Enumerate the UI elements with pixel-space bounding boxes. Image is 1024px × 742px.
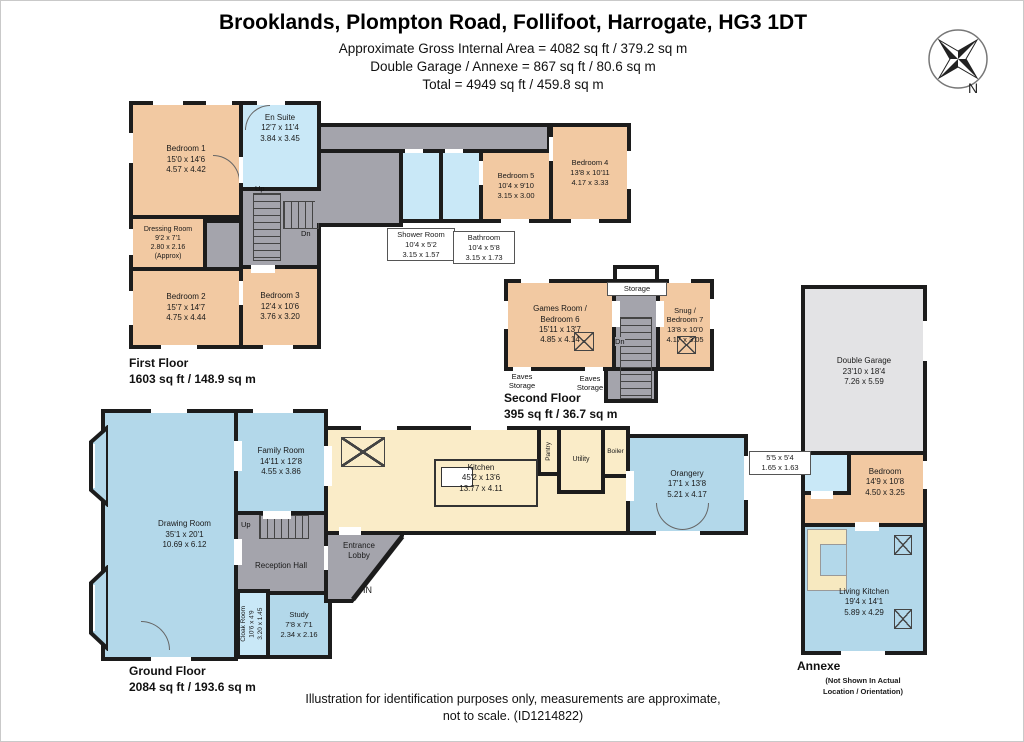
room-name: Storage — [610, 284, 664, 294]
gross-area-line: Approximate Gross Internal Area = 4082 s… — [1, 40, 1024, 58]
room-dims-metric: 4.85 x 4.14 — [533, 335, 587, 345]
door-opening — [811, 491, 833, 499]
room-label: Bedroom 4 13'8 x 10'11 4.17 x 3.33 — [570, 158, 609, 187]
disclaimer-line2: not to scale. (ID1214822) — [1, 708, 1024, 725]
room-dims-imperial: 15'0 x 14'6 — [166, 155, 206, 165]
roof-lantern-icon — [341, 437, 385, 467]
door-opening — [656, 301, 664, 327]
door-opening — [234, 539, 242, 565]
window — [841, 651, 885, 655]
room-name: Bedroom 4 — [570, 158, 609, 168]
room-label: Double Garage 23'10 x 18'4 7.26 x 5.59 — [837, 356, 891, 387]
room-label: Bedroom 1 15'0 x 14'6 4.57 x 4.42 — [166, 144, 206, 175]
stairs-second-floor — [620, 317, 652, 399]
room-name: Shower Room — [390, 230, 452, 240]
door-opening — [239, 281, 243, 305]
room-dims-imperial: 9'2 x 7'1 — [144, 234, 192, 243]
room-name: Drawing Room — [158, 519, 211, 529]
disclaimer-line1: Illustration for identification purposes… — [1, 691, 1024, 708]
room-dims-imperial: 45'2 x 13'6 — [433, 473, 529, 483]
room-dims-approx: (Approx) — [144, 252, 192, 261]
room-drawing-room: Drawing Room 35'1 x 20'1 10.69 x 6.12 — [101, 409, 238, 661]
window — [253, 409, 293, 413]
floor-name: Ground Floor — [129, 663, 256, 679]
room-bedroom-2: Bedroom 2 15'7 x 14'7 4.75 x 4.44 — [129, 267, 243, 349]
window — [923, 321, 927, 361]
window — [263, 345, 293, 349]
annexe-label: Annexe — [797, 658, 840, 674]
annexe-note-line1: (Not Shown In Actual — [789, 676, 937, 687]
room-name-2: Lobby — [327, 551, 391, 561]
eaves-line1: Eaves — [499, 372, 545, 381]
room-family-room: Family Room 14'11 x 12'8 4.55 x 3.86 — [234, 409, 328, 515]
room-dims-metric: 4.55 x 3.86 — [257, 467, 304, 477]
bay-window-icon — [84, 565, 108, 651]
room-name: Bedroom 2 — [166, 292, 206, 302]
window — [151, 409, 187, 413]
total-area-line: Total = 4949 sq ft / 459.8 sq m — [1, 76, 1024, 94]
room-name: Kitchen — [433, 463, 529, 473]
kitchen-label: Kitchen 45'2 x 13'6 13.77 x 4.11 — [433, 463, 529, 494]
page-title: Brooklands, Plompton Road, Follifoot, Ha… — [1, 11, 1024, 35]
room-dims-metric: 4.75 x 4.44 — [166, 313, 206, 323]
room-label: En Suite 12'7 x 11'4 3.84 x 3.45 — [260, 105, 300, 144]
room-dims-imperial: 7'8 x 7'1 — [280, 620, 317, 630]
room-dims-imperial: 13'8 x 10'11 — [570, 168, 609, 178]
room-name: Dressing Room — [144, 225, 192, 234]
window — [361, 426, 397, 430]
window — [129, 133, 133, 163]
window — [501, 219, 529, 223]
room-bathroom — [439, 149, 483, 223]
room-name: Family Room — [257, 446, 304, 456]
room-dims-imperial: 10'4 x 9'10 — [497, 181, 534, 191]
room-label: Bedroom 3 12'4 x 10'6 3.76 x 3.20 — [260, 291, 300, 322]
room-cloak-room: Cloak Room 10'6 x 4'9 3.20 x 1.45 — [236, 589, 270, 659]
door-opening — [234, 441, 242, 471]
room-label: Drawing Room 35'1 x 20'1 10.69 x 6.12 — [128, 519, 211, 550]
stairs-first-floor-down — [283, 201, 319, 229]
room-double-garage: Double Garage 23'10 x 18'4 7.26 x 5.59 — [801, 285, 927, 459]
room-dims-imperial: 19'4 x 14'1 — [809, 597, 919, 607]
room-label: Snug / Bedroom 7 13'8 x 10'0 4.17 x 3.05 — [666, 306, 703, 345]
door-opening — [612, 301, 620, 327]
room-dims-metric: 4.17 x 3.05 — [666, 335, 703, 345]
door-opening — [513, 367, 531, 371]
room-name: En Suite — [260, 113, 300, 123]
door-opening — [239, 157, 243, 183]
room-name: Games Room / — [533, 304, 587, 314]
room-dims-imperial: 12'4 x 10'6 — [260, 302, 300, 312]
window — [206, 101, 232, 105]
room-dims-imperial: 10'4 x 5'2 — [390, 240, 452, 250]
corridor-opening — [315, 191, 325, 223]
room-label: Family Room 14'11 x 12'8 4.55 x 3.86 — [257, 446, 304, 477]
door-opening — [324, 446, 332, 486]
door-opening — [251, 265, 275, 273]
room-label: Games Room / Bedroom 6 15'11 x 13'7 4.85… — [533, 304, 587, 346]
window — [129, 291, 133, 325]
door-opening — [445, 149, 463, 153]
room-dims-imperial: 13'8 x 10'0 — [666, 325, 703, 335]
room-dims-imperial: 23'10 x 18'4 — [837, 367, 891, 377]
eaves-line2: Storage — [499, 381, 545, 390]
room-label: Boiler — [607, 448, 624, 456]
stairs-first-floor-up — [253, 193, 281, 261]
door-opening — [479, 161, 483, 185]
door-opening — [405, 149, 423, 153]
door-opening — [339, 527, 361, 535]
stairs-up-label: Up — [255, 184, 265, 193]
window — [627, 151, 631, 189]
room-bedroom-3: Bedroom 3 12'4 x 10'6 3.76 x 3.20 — [239, 265, 321, 349]
room-study: Study 7'8 x 7'1 2.34 x 2.16 — [266, 591, 332, 659]
window — [151, 657, 191, 661]
disclaimer: Illustration for identification purposes… — [1, 691, 1024, 725]
room-name: Entrance — [327, 541, 391, 551]
room-dims-metric: 5.21 x 4.17 — [667, 490, 707, 500]
plan-header: Brooklands, Plompton Road, Follifoot, Ha… — [1, 11, 1024, 95]
living-kitchen-label: Living Kitchen 19'4 x 14'1 5.89 x 4.29 — [809, 587, 919, 618]
entrance-in-label: IN — [363, 585, 372, 595]
room-dims-metric: 2.34 x 2.16 — [280, 630, 317, 640]
room-dims-metric: 13.77 x 4.11 — [433, 484, 529, 494]
room-name: Pantry — [545, 442, 553, 461]
room-label: Study 7'8 x 7'1 2.34 x 2.16 — [280, 610, 317, 639]
door-opening — [549, 137, 553, 161]
room-dims-imperial: 14'9 x 10'8 — [847, 477, 923, 487]
window — [521, 279, 549, 283]
shower-room-callout: Shower Room 10'4 x 5'2 3.15 x 1.57 — [387, 228, 455, 261]
room-dims-imperial: 5'5 x 5'4 — [752, 453, 808, 463]
room-name: Utility — [572, 455, 589, 464]
room-dims-imperial: 14'11 x 12'8 — [257, 457, 304, 467]
room-name: Bedroom — [847, 467, 923, 477]
garage-annexe-area-line: Double Garage / Annexe = 867 sq ft / 80.… — [1, 58, 1024, 76]
storage-callout: Storage — [607, 282, 667, 296]
room-dims-metric: 5.89 x 4.29 — [809, 608, 919, 618]
room-dims-imperial: 35'1 x 20'1 — [158, 530, 211, 540]
room-label: Utility — [572, 455, 589, 464]
room-dims-metric: 3.15 x 1.73 — [456, 253, 512, 263]
entrance-lobby-label: Entrance Lobby — [327, 541, 391, 562]
window — [257, 101, 285, 105]
eaves-line1: Eaves — [567, 374, 613, 383]
room-bedroom-5: Bedroom 5 10'4 x 9'10 3.15 x 3.00 — [479, 149, 553, 223]
room-dims-metric: 4.57 x 4.42 — [166, 165, 206, 175]
door-opening — [855, 522, 879, 531]
room-label: Reception Hall — [255, 535, 307, 571]
room-label: Bedroom 5 10'4 x 9'10 3.15 x 3.00 — [497, 171, 534, 200]
room-dims-metric: 3.76 x 3.20 — [260, 312, 300, 322]
window — [153, 101, 183, 105]
window — [161, 345, 197, 349]
room-dims-metric: 2.80 x 2.16 — [144, 243, 192, 252]
room-dims-imperial: 15'7 x 14'7 — [166, 303, 206, 313]
floorplan-page: Brooklands, Plompton Road, Follifoot, Ha… — [0, 0, 1024, 742]
floor-name: First Floor — [129, 355, 256, 371]
room-label: Pantry — [545, 442, 553, 461]
second-floor-label: Second Floor 395 sq ft / 36.7 sq m — [504, 390, 617, 422]
window — [744, 456, 748, 500]
room-dressing-room: Dressing Room 9'2 x 7'1 2.80 x 2.16 (App… — [129, 215, 207, 271]
room-dims-metric: 3.84 x 3.45 — [260, 134, 300, 144]
room-name: Bedroom 3 — [260, 291, 300, 301]
room-name: Boiler — [607, 448, 624, 456]
room-dims-imperial: 17'1 x 13'8 — [667, 479, 707, 489]
bathroom-callout: Bathroom 10'4 x 5'8 3.15 x 1.73 — [453, 231, 515, 264]
floor-area: 1603 sq ft / 148.9 sq m — [129, 371, 256, 387]
room-name: Snug / — [666, 306, 703, 316]
room-name: Double Garage — [837, 356, 891, 366]
floor-name: Second Floor — [504, 390, 617, 406]
room-name: Orangery — [667, 469, 707, 479]
room-utility: Utility — [557, 426, 605, 494]
room-dims-metric: 3.20 x 1.45 — [257, 606, 265, 642]
room-dims-imperial: 12'7 x 11'4 — [260, 123, 300, 133]
room-dims-metric: 4.50 x 3.25 — [847, 488, 923, 498]
first-floor-corridor-link — [317, 149, 403, 227]
room-dims-metric: 1.65 x 1.63 — [752, 463, 808, 473]
room-dims-imperial: 10'4 x 5'8 — [456, 243, 512, 253]
window — [471, 426, 507, 430]
window — [710, 299, 714, 329]
room-shower-room — [399, 149, 443, 223]
window — [129, 229, 133, 255]
room-name: Reception Hall — [255, 561, 307, 571]
stairs-down-label: Dn — [301, 229, 311, 238]
window — [504, 301, 508, 329]
room-dims-imperial: 15'11 x 13'7 — [533, 325, 587, 335]
room-label: Bedroom 2 15'7 x 14'7 4.75 x 4.44 — [166, 292, 206, 323]
room-dims-imperial: 10'6 x 4'9 — [249, 606, 257, 642]
room-dims-metric: 3.15 x 1.57 — [390, 250, 452, 260]
room-label: Dressing Room 9'2 x 7'1 2.80 x 2.16 (App… — [144, 225, 192, 261]
room-name: Bedroom 5 — [497, 171, 534, 181]
window — [669, 279, 691, 283]
stairs-down-label-second: Dn — [615, 337, 625, 346]
stairs-up-label-ground: Up — [241, 520, 251, 529]
room-name-2: Bedroom 7 — [666, 315, 703, 325]
room-name: Bathroom — [456, 233, 512, 243]
kitchen-counter-notch — [820, 544, 847, 576]
room-name: Study — [280, 610, 317, 620]
first-floor-label: First Floor 1603 sq ft / 148.9 sq m — [129, 355, 256, 387]
room-name: Living Kitchen — [809, 587, 919, 597]
room-label: Cloak Room 10'6 x 4'9 3.20 x 1.45 — [240, 606, 265, 642]
room-dims-metric: 10.69 x 6.12 — [158, 540, 211, 550]
bay-window-icon — [84, 425, 108, 507]
door-opening — [263, 511, 291, 519]
rooflight-icon — [894, 535, 912, 555]
window — [571, 219, 599, 223]
window — [656, 531, 700, 535]
annexe-shower-callout: 5'5 x 5'4 1.65 x 1.63 — [749, 451, 811, 475]
annexe-bedroom-label: Bedroom 14'9 x 10'8 4.50 x 3.25 — [847, 467, 923, 498]
room-name-2: Bedroom 6 — [533, 315, 587, 325]
room-bedroom-4: Bedroom 4 13'8 x 10'11 4.17 x 3.33 — [549, 123, 631, 223]
room-name: Bedroom 1 — [166, 144, 206, 154]
eaves-storage-label-1: Eaves Storage — [499, 372, 545, 390]
room-games-room-bedroom-6: Games Room / Bedroom 6 15'11 x 13'7 4.85… — [504, 279, 616, 371]
room-dims-metric: 7.26 x 5.59 — [837, 377, 891, 387]
window — [923, 461, 927, 489]
floor-area: 395 sq ft / 36.7 sq m — [504, 406, 617, 422]
room-dims-metric: 4.17 x 3.33 — [570, 178, 609, 188]
door-opening — [626, 471, 634, 501]
door-opening — [585, 367, 603, 371]
room-dims-metric: 3.15 x 3.00 — [497, 191, 534, 201]
room-label: Orangery 17'1 x 13'8 5.21 x 4.17 — [667, 469, 707, 500]
